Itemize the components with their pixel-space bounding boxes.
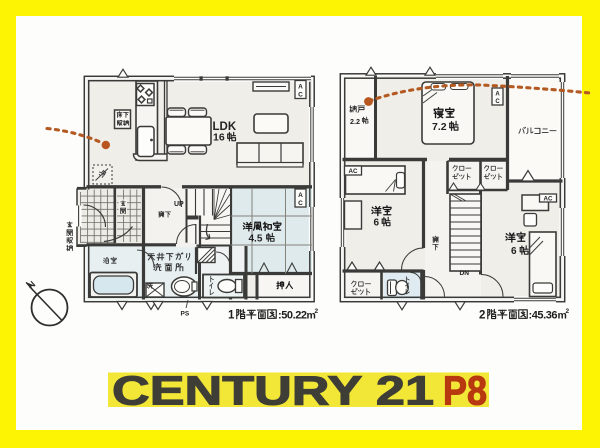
svg-text:PS: PS — [181, 311, 190, 318]
svg-text:6: 6 — [511, 246, 517, 257]
svg-text:C: C — [495, 99, 500, 105]
svg-text::50.22: :50.22 — [278, 310, 307, 322]
svg-text:2.2: 2.2 — [350, 117, 360, 126]
svg-text:C: C — [298, 200, 303, 207]
svg-text:A: A — [298, 192, 303, 199]
svg-text:UP: UP — [174, 201, 184, 208]
svg-text:16: 16 — [213, 132, 225, 144]
svg-text:6: 6 — [374, 218, 380, 229]
svg-text:A: A — [298, 84, 303, 91]
svg-text:DN: DN — [460, 270, 470, 277]
svg-text:1: 1 — [228, 310, 235, 322]
svg-text:P8: P8 — [443, 368, 487, 414]
svg-text:2: 2 — [566, 308, 570, 315]
svg-text:7.2: 7.2 — [432, 121, 447, 133]
svg-text:CENTURY 21: CENTURY 21 — [112, 368, 434, 414]
svg-text::45.36: :45.36 — [529, 310, 558, 322]
svg-text:2: 2 — [315, 308, 319, 315]
svg-text:AC: AC — [349, 168, 358, 175]
svg-text:4.5: 4.5 — [249, 234, 263, 245]
svg-text:C: C — [298, 92, 303, 99]
svg-text:AC: AC — [544, 196, 553, 203]
svg-text:A: A — [495, 92, 500, 98]
svg-text:2: 2 — [479, 310, 485, 322]
